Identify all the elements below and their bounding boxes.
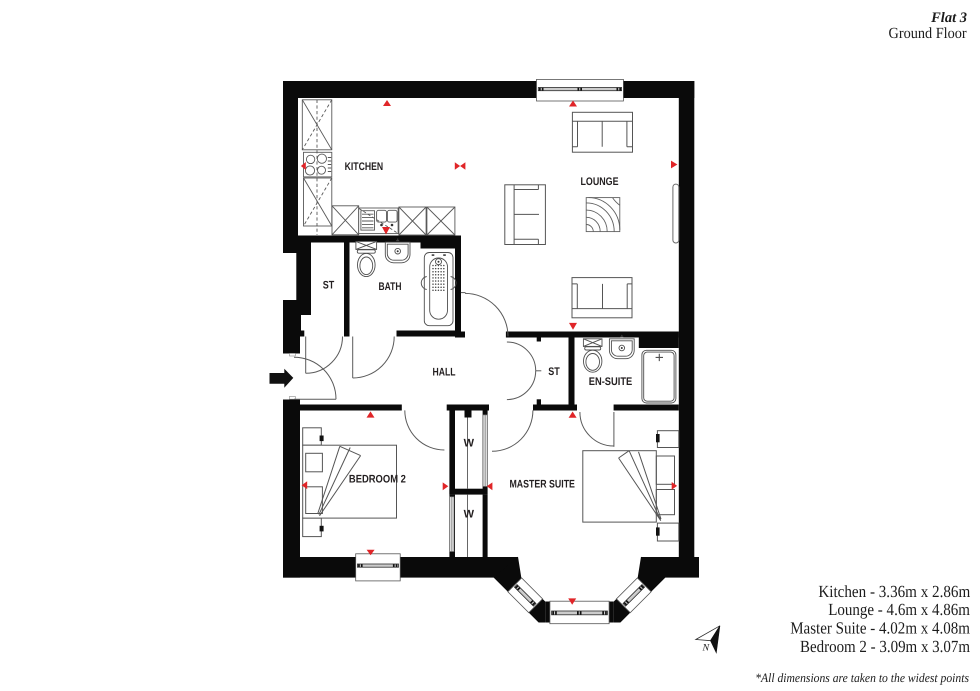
svg-text:EN-SUITE: EN-SUITE bbox=[589, 376, 633, 388]
svg-text:W: W bbox=[464, 438, 475, 450]
svg-text:Kitchen - 3.36m x 2.86m: Kitchen - 3.36m x 2.86m bbox=[818, 582, 970, 601]
svg-text:N: N bbox=[702, 643, 711, 654]
svg-text:HALL: HALL bbox=[433, 367, 456, 379]
svg-text:ST: ST bbox=[323, 279, 335, 291]
svg-text:LOUNGE: LOUNGE bbox=[581, 176, 619, 188]
svg-text:KITCHEN: KITCHEN bbox=[345, 161, 384, 173]
svg-text:W: W bbox=[464, 509, 475, 521]
svg-text:Flat 3: Flat 3 bbox=[930, 10, 967, 26]
svg-text:BATH: BATH bbox=[379, 281, 402, 293]
svg-text:*All dimensions are taken to t: *All dimensions are taken to the widest … bbox=[755, 671, 969, 685]
svg-text:Lounge - 4.6m x 4.86m: Lounge - 4.6m x 4.86m bbox=[828, 600, 970, 619]
svg-text:MASTER SUITE: MASTER SUITE bbox=[509, 478, 575, 490]
svg-text:ST: ST bbox=[548, 366, 560, 378]
svg-text:Ground Floor: Ground Floor bbox=[889, 25, 968, 42]
svg-text:BEDROOM 2: BEDROOM 2 bbox=[349, 474, 406, 486]
svg-text:Master Suite - 4.02m x 4.08m: Master Suite - 4.02m x 4.08m bbox=[790, 619, 970, 638]
svg-text:Bedroom 2 - 3.09m x 3.07m: Bedroom 2 - 3.09m x 3.07m bbox=[800, 637, 970, 656]
